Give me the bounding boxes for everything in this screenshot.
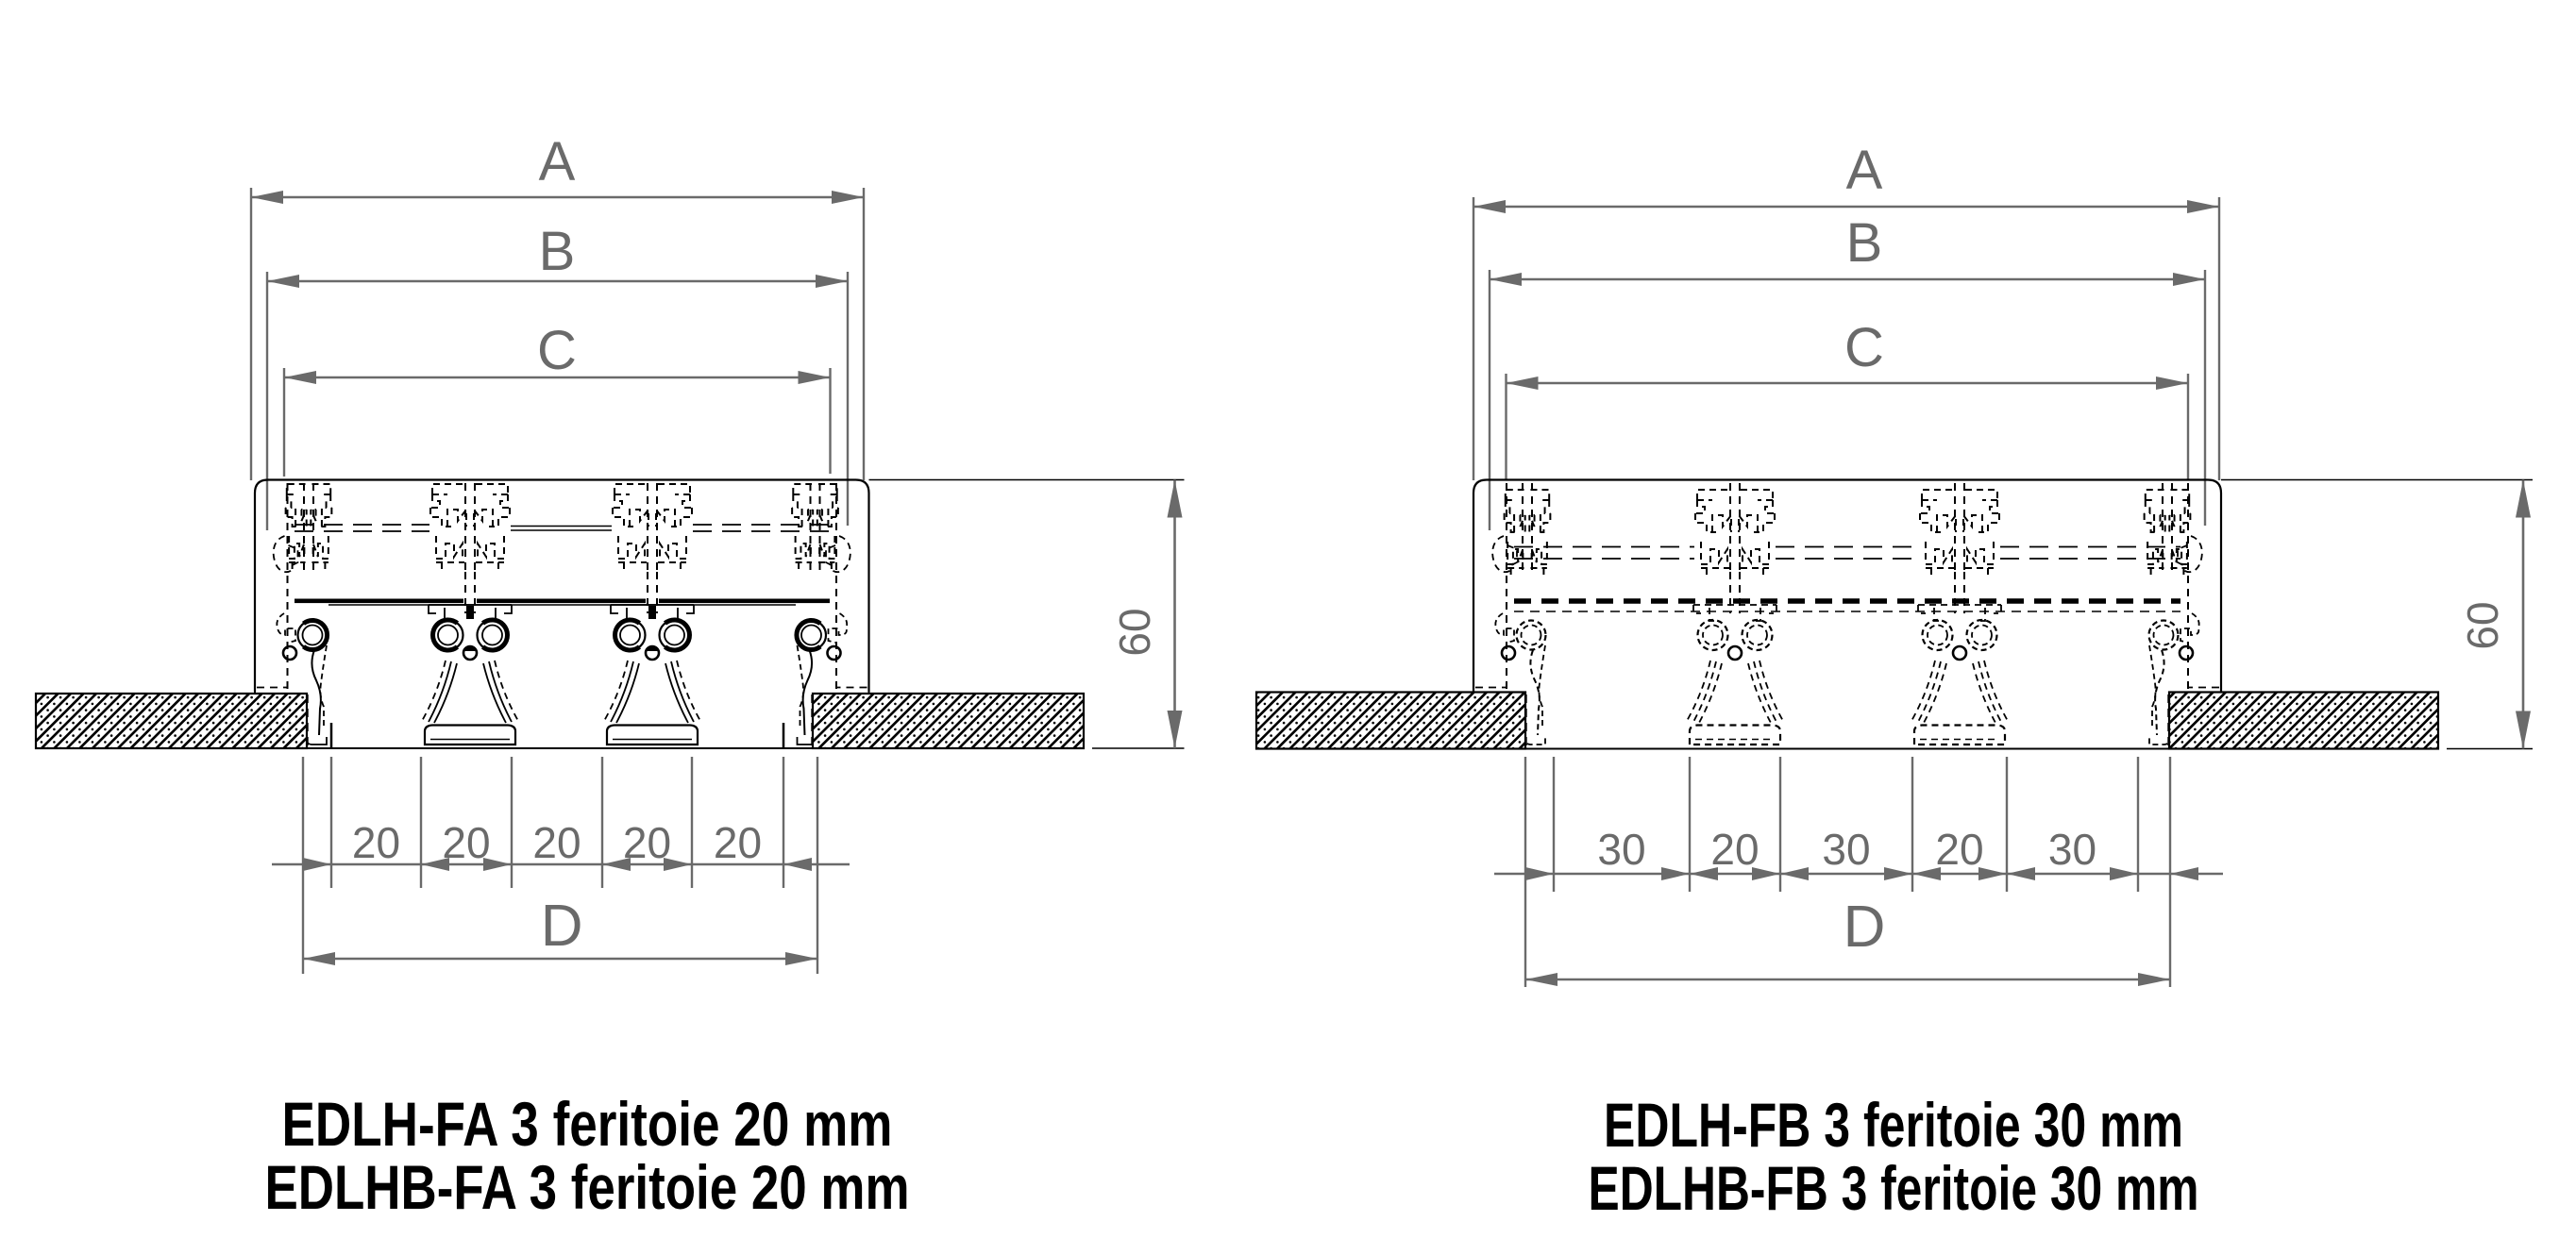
svg-text:B: B [1846,212,1883,274]
svg-text:EDLHB-FA 3 feritoie 20 mm: EDLHB-FA 3 feritoie 20 mm [265,1152,910,1222]
svg-text:30: 30 [2048,825,2096,874]
svg-text:30: 30 [1822,825,1870,874]
svg-text:20: 20 [1710,825,1759,874]
svg-text:20: 20 [442,818,490,867]
svg-text:20: 20 [1935,825,1983,874]
svg-text:D: D [1844,895,1886,960]
svg-text:A: A [1846,140,1883,201]
svg-text:EDLH-FB 3 feritoie 30 mm: EDLH-FB 3 feritoie 30 mm [1604,1090,2183,1160]
svg-text:20: 20 [352,818,400,867]
svg-text:20: 20 [623,818,671,867]
svg-text:60: 60 [2458,601,2507,649]
svg-text:C: C [537,320,577,381]
svg-text:30: 30 [1597,825,1645,874]
svg-text:20: 20 [714,818,762,867]
svg-text:20: 20 [532,818,581,867]
svg-text:EDLHB-FB 3 feritoie 30 mm: EDLHB-FB 3 feritoie 30 mm [1589,1153,2199,1223]
svg-text:D: D [541,894,583,959]
svg-text:60: 60 [1110,608,1159,656]
svg-text:A: A [539,131,576,192]
svg-text:B: B [539,221,576,282]
svg-text:C: C [1844,317,1884,378]
svg-text:EDLH-FA 3 feritoie 20 mm: EDLH-FA 3 feritoie 20 mm [282,1089,893,1159]
